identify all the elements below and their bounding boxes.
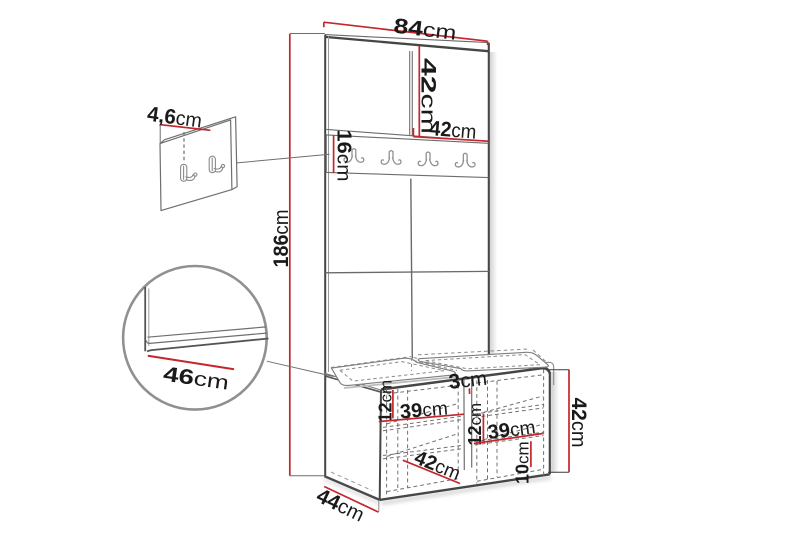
svg-text:42cm: 42cm <box>567 398 590 448</box>
svg-text:12cm: 12cm <box>465 403 485 446</box>
svg-text:42cm: 42cm <box>429 117 478 144</box>
svg-text:10cm: 10cm <box>513 441 533 484</box>
svg-text:16cm: 16cm <box>333 130 355 182</box>
svg-text:39cm: 39cm <box>399 397 449 423</box>
svg-text:3cm: 3cm <box>447 367 488 394</box>
svg-text:12cm: 12cm <box>375 380 395 423</box>
svg-text:186cm: 186cm <box>270 210 293 268</box>
